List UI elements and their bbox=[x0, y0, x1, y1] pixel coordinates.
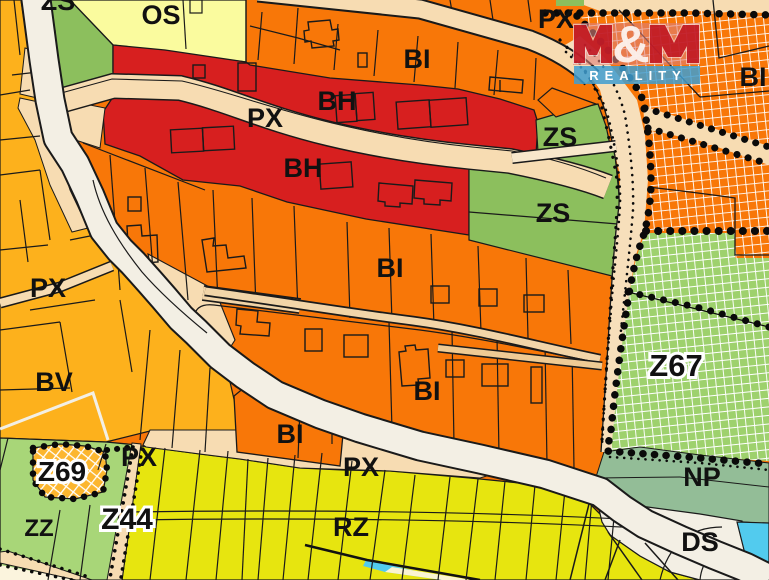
svg-text:ZS: ZS bbox=[41, 0, 76, 16]
svg-text:BI: BI bbox=[404, 44, 431, 74]
svg-text:REALITY: REALITY bbox=[589, 68, 687, 83]
svg-text:BI: BI bbox=[377, 253, 404, 283]
svg-text:Z69: Z69 bbox=[38, 456, 86, 487]
svg-text:ZZ: ZZ bbox=[24, 515, 53, 542]
svg-text:ZS: ZS bbox=[543, 122, 578, 152]
svg-text:RZ: RZ bbox=[333, 512, 369, 542]
svg-text:BI: BI bbox=[740, 62, 767, 92]
svg-text:ZS: ZS bbox=[536, 198, 571, 228]
svg-text:BH: BH bbox=[318, 86, 357, 116]
svg-text:PX: PX bbox=[343, 452, 379, 482]
svg-text:BH: BH bbox=[284, 153, 323, 183]
svg-text:Z44: Z44 bbox=[101, 503, 153, 536]
svg-text:PX: PX bbox=[538, 4, 574, 34]
svg-text:BI: BI bbox=[277, 419, 304, 449]
svg-text:DS: DS bbox=[681, 527, 719, 557]
svg-text:NP: NP bbox=[683, 462, 721, 492]
svg-text:PX: PX bbox=[30, 273, 66, 303]
svg-text:&: & bbox=[612, 16, 650, 74]
svg-text:OS: OS bbox=[141, 0, 180, 30]
svg-text:BI: BI bbox=[414, 376, 441, 406]
svg-text:PX: PX bbox=[121, 442, 157, 472]
svg-text:BV: BV bbox=[35, 367, 73, 397]
svg-text:Z67: Z67 bbox=[649, 348, 702, 383]
svg-text:PX: PX bbox=[247, 103, 283, 133]
